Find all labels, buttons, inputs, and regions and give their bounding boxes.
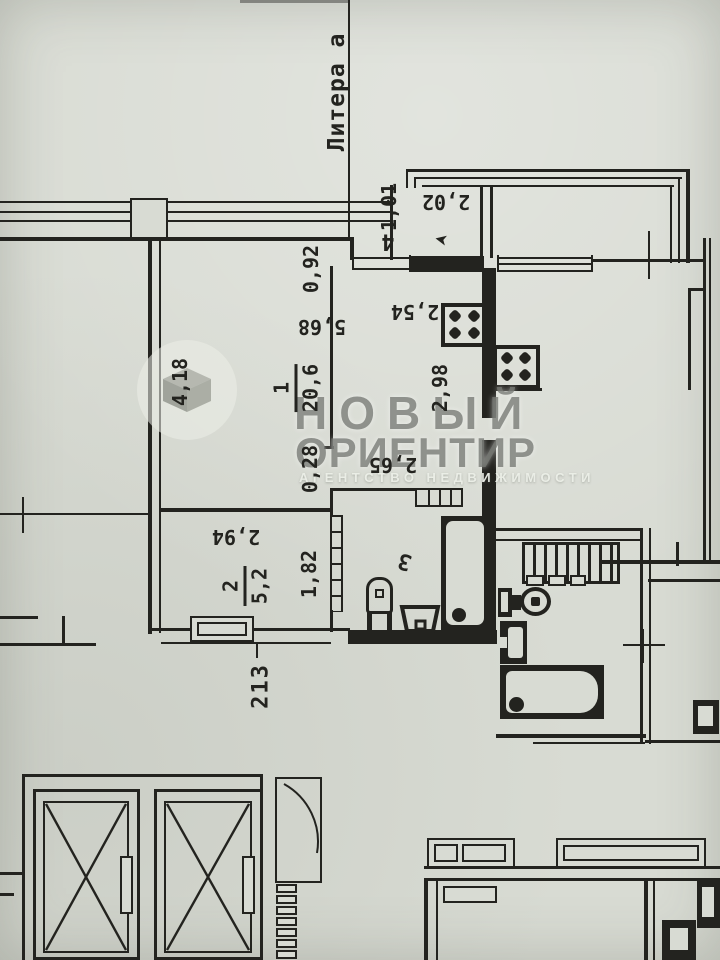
wall-segment <box>256 644 258 658</box>
wall-segment <box>591 255 593 272</box>
watermark-brand-line3: АГЕНТСТВО НЕДВИЖИМОСТИ <box>299 470 595 485</box>
window-inner-pane <box>197 622 247 636</box>
wall-segment <box>490 185 493 258</box>
wall-segment <box>497 270 593 272</box>
dim-corridor-length: 2,65 <box>369 453 417 477</box>
room-4-number: 4 <box>381 229 394 254</box>
elevator-door <box>120 856 133 914</box>
balcony-pillar <box>130 198 168 239</box>
window-symbol <box>427 838 515 868</box>
wall-segment <box>480 185 483 258</box>
wall-segment <box>161 642 331 644</box>
wall-segment <box>0 201 390 203</box>
wall-segment <box>0 211 390 213</box>
room-2-label: 2 5,2 <box>219 566 272 606</box>
wall-segment <box>333 488 417 491</box>
wall-segment <box>0 616 38 619</box>
wall-segment <box>623 644 665 646</box>
wall-segment <box>688 290 691 390</box>
dim-entry-niche: 0,92 <box>299 245 323 293</box>
dim-balcony-depth: 1,01 <box>377 183 401 231</box>
sink-icon <box>500 621 527 664</box>
room-2-area: 5,2 <box>248 568 272 604</box>
vent-block <box>526 575 544 586</box>
wall-segment <box>148 239 152 634</box>
wall-segment <box>676 542 679 566</box>
wall-segment <box>330 488 333 515</box>
wall-segment <box>496 734 646 738</box>
room-1-number: 1 <box>270 382 294 394</box>
wall-segment <box>324 446 334 449</box>
dim-room2-width: 2,94 <box>212 525 260 549</box>
wall-segment <box>645 740 720 743</box>
room-1-area: 20,6 <box>299 364 323 412</box>
wall-segment <box>709 238 711 564</box>
dim-kitchen-width: 2,54 <box>391 300 439 324</box>
dim-corridor-step: 0,28 <box>298 445 322 493</box>
toilet-icon <box>366 577 393 637</box>
vent-block <box>570 575 586 586</box>
wall-segment <box>0 893 14 896</box>
entrance-arrow-icon: ➤ <box>432 224 450 251</box>
wall-segment <box>62 616 65 646</box>
bathtub-icon <box>441 516 489 634</box>
photo-edge-shadow <box>240 0 350 3</box>
sink-icon <box>399 604 441 634</box>
dim-living-width: 4,18 <box>168 358 192 406</box>
bathtub-icon <box>500 665 604 719</box>
fraction-bar <box>244 566 247 606</box>
floor-mark-label: 213 <box>249 663 274 709</box>
wall-segment <box>0 643 96 646</box>
wall-segment <box>653 881 655 960</box>
wall-segment <box>22 774 25 960</box>
wall-segment <box>330 266 333 448</box>
stove-icon <box>697 880 720 928</box>
wall-segment <box>406 169 690 172</box>
wall-segment <box>0 220 390 222</box>
wall-niche <box>443 886 497 903</box>
wall-segment <box>703 238 706 564</box>
sink-icon <box>662 920 696 960</box>
radiator-fin <box>428 490 430 505</box>
room-3-number: 3 <box>395 547 415 575</box>
wall-segment <box>414 177 416 188</box>
elevator-door <box>242 856 255 914</box>
wall-segment <box>424 881 428 960</box>
wall-segment <box>424 878 720 881</box>
fraction-bar <box>295 364 298 412</box>
room-1-label: 1 20,6 <box>270 364 323 412</box>
wall-segment <box>0 237 352 241</box>
radiator-icon <box>415 488 463 507</box>
stairs-icon <box>276 884 298 960</box>
wall-segment <box>436 881 438 960</box>
wall-segment <box>414 177 682 179</box>
radiator-fin <box>439 490 441 505</box>
wall-segment <box>678 177 680 263</box>
wall-segment <box>644 881 648 960</box>
radiator-fin <box>450 490 452 505</box>
wall-segment <box>161 508 333 512</box>
floor-plan-photo: НОВЫЙ ОРИЕНТИР АГЕНТСТВО НЕДВИЖИМОСТИ Ли… <box>0 0 720 960</box>
wall-segment <box>497 257 593 259</box>
wall-segment <box>22 497 24 533</box>
stove-icon <box>441 303 489 347</box>
dim-room2-height: 1,82 <box>297 550 321 598</box>
dim-living-length: 5,68 <box>298 315 346 339</box>
wall-segment <box>409 256 484 272</box>
wall-segment <box>352 268 412 270</box>
wall-segment <box>22 774 262 777</box>
wall-segment <box>496 528 643 531</box>
wall-segment <box>352 257 412 259</box>
window-symbol <box>556 838 706 868</box>
wall-segment <box>497 263 593 265</box>
wall-segment <box>670 185 672 263</box>
sink-icon <box>693 700 719 734</box>
vent-shaft-icon <box>330 515 343 612</box>
dim-kitchen-depth: 2,98 <box>428 364 452 412</box>
wall-segment <box>648 579 720 582</box>
stove-icon <box>493 345 540 389</box>
wall-segment <box>648 231 650 279</box>
wall-segment <box>642 629 644 663</box>
wall-segment <box>159 239 161 633</box>
room-2-number: 2 <box>219 580 243 592</box>
dim-balcony-width: 2,02 <box>422 190 470 214</box>
wall-segment <box>686 169 690 263</box>
vent-block <box>548 575 566 586</box>
toilet-icon <box>498 587 553 618</box>
wall-segment <box>496 539 643 541</box>
window-symbol <box>190 616 254 642</box>
wall-segment <box>533 742 645 744</box>
wall-segment <box>497 255 499 272</box>
wall-segment <box>422 185 674 187</box>
wall-segment <box>352 255 354 270</box>
wall-segment <box>0 872 22 875</box>
wall-segment <box>688 288 704 291</box>
door-arc-icon <box>275 777 322 883</box>
litera-label: Литера а <box>324 33 350 152</box>
wall-segment <box>406 169 408 188</box>
